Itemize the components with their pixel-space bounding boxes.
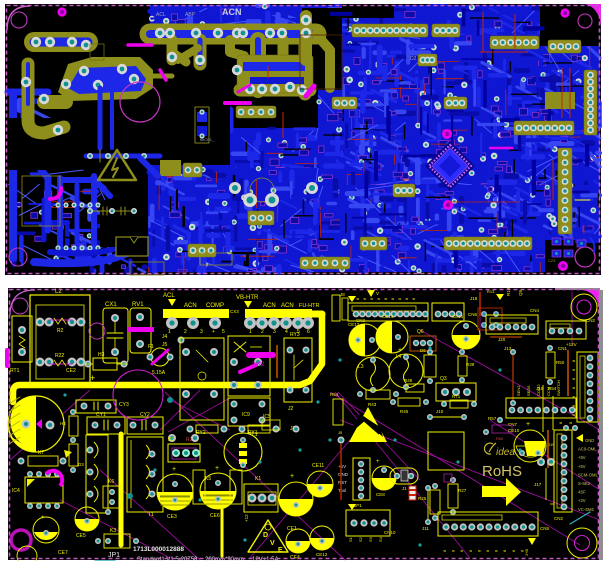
- svg-text:K5: K5: [205, 476, 211, 482]
- svg-text:CN10: CN10: [384, 530, 396, 535]
- svg-text:CE15: CE15: [452, 314, 464, 319]
- svg-text:S2: S2: [358, 536, 363, 542]
- svg-text:+2V: +2V: [578, 498, 586, 503]
- svg-text:CE3: CE3: [167, 514, 177, 520]
- svg-text:R71: R71: [452, 394, 461, 399]
- svg-text:CY1: CY1: [96, 412, 106, 418]
- svg-text:V: V: [270, 540, 275, 547]
- svg-text:SEN2: SEN2: [516, 385, 521, 396]
- svg-text:J4: J4: [162, 334, 168, 340]
- svg-text:CE14: CE14: [382, 314, 394, 319]
- svg-text:AC0-OML: AC0-OML: [578, 447, 597, 452]
- svg-text:S4: S4: [378, 536, 383, 542]
- svg-text:+: +: [90, 373, 95, 383]
- svg-text:J1: J1: [402, 486, 407, 491]
- svg-text:K1: K1: [255, 476, 261, 482]
- svg-text:+12V: +12V: [566, 342, 577, 347]
- svg-text:R57: R57: [488, 416, 497, 421]
- svg-text:CE12: CE12: [316, 552, 328, 557]
- svg-text:R19: R19: [506, 287, 511, 296]
- svg-text:+: +: [526, 421, 530, 428]
- svg-text:+5V: +5V: [338, 464, 346, 469]
- svg-text:CE11: CE11: [312, 463, 324, 469]
- svg-text:R22: R22: [55, 353, 64, 359]
- svg-text:RY3: RY3: [290, 332, 300, 338]
- svg-text:J5: J5: [162, 342, 168, 348]
- svg-text:R39: R39: [466, 362, 475, 367]
- svg-text:Tool: Tool: [338, 488, 346, 493]
- svg-text:R27: R27: [458, 488, 467, 493]
- svg-text:J18: J18: [470, 296, 478, 301]
- svg-text:ACL: ACL: [156, 12, 166, 18]
- svg-text:R54: R54: [330, 392, 339, 397]
- svg-text:R2: R2: [57, 328, 64, 334]
- svg-text:CN1: CN1: [558, 346, 567, 351]
- svg-text:L3: L3: [358, 364, 364, 370]
- svg-text:ABP: ABP: [185, 12, 196, 18]
- svg-text:J13: J13: [504, 346, 512, 351]
- svg-text:ACN: ACN: [281, 303, 294, 309]
- svg-text:ACN: ACN: [184, 303, 197, 309]
- svg-text:5: 5: [222, 329, 225, 335]
- svg-text:J10: J10: [436, 409, 444, 414]
- svg-text:GND: GND: [585, 438, 594, 443]
- svg-text:SED5: SED5: [526, 385, 531, 396]
- svg-text:R60: R60: [496, 436, 504, 441]
- svg-text:CX3: CX3: [230, 309, 239, 314]
- svg-text:1713L000012888: 1713L000012888: [133, 546, 184, 553]
- svg-text:D2: D2: [410, 56, 417, 62]
- svg-text:idea: idea: [496, 447, 515, 458]
- svg-text:CY3: CY3: [119, 402, 129, 408]
- svg-text:ACN: ACN: [222, 7, 242, 17]
- svg-text:5.15A: 5.15A: [152, 370, 166, 376]
- svg-text:CE2: CE2: [66, 368, 76, 374]
- svg-text:H3: H3: [98, 352, 105, 358]
- svg-text:+: +: [398, 347, 402, 354]
- svg-text:ACL: ACL: [163, 293, 175, 299]
- svg-text:+: +: [376, 459, 380, 465]
- svg-text:CN2: CN2: [554, 516, 563, 521]
- svg-text:C23: C23: [548, 258, 556, 263]
- svg-text:F1: F1: [148, 344, 154, 350]
- svg-text:SWITCH: SWITCH: [556, 380, 561, 396]
- svg-text:CE7: CE7: [58, 550, 68, 556]
- svg-text:IC4: IC4: [12, 488, 20, 494]
- svg-text:4: 4: [285, 329, 288, 335]
- svg-text:4SF: 4SF: [578, 490, 586, 495]
- svg-text:D6: D6: [420, 348, 426, 353]
- svg-text:K7: K7: [38, 450, 44, 456]
- svg-text:CX1: CX1: [105, 302, 117, 308]
- svg-text:Q3: Q3: [440, 376, 447, 382]
- svg-text:RST: RST: [338, 480, 347, 485]
- svg-text:T1: T1: [148, 512, 154, 518]
- svg-text:J8: J8: [340, 292, 345, 297]
- svg-text:D1: D1: [168, 437, 175, 443]
- svg-text:FU-HTR: FU-HTR: [299, 303, 319, 309]
- svg-text:CE6: CE6: [210, 513, 220, 519]
- svg-text:3: 3: [273, 329, 276, 335]
- svg-text:CE8: CE8: [376, 492, 385, 497]
- svg-text:S3: S3: [368, 536, 373, 542]
- svg-text:CCM: CCM: [546, 387, 551, 396]
- svg-text:L1: L1: [252, 432, 258, 438]
- svg-text:RV1: RV1: [132, 302, 144, 308]
- svg-text:+: +: [215, 465, 219, 472]
- svg-text:+5V: +5V: [578, 455, 586, 460]
- svg-text:CN3: CN3: [356, 318, 365, 323]
- svg-text:CN5: CN5: [540, 526, 549, 531]
- svg-text:RT1: RT1: [10, 368, 20, 374]
- svg-text:+5V: +5V: [578, 464, 586, 469]
- svg-text:CY2: CY2: [140, 412, 150, 418]
- svg-text:Q6: Q6: [417, 329, 424, 335]
- svg-text:+: +: [172, 466, 176, 473]
- svg-text:E: E: [278, 547, 283, 554]
- svg-text:CN7: CN7: [508, 422, 517, 427]
- svg-text:1: 1: [249, 329, 252, 335]
- svg-text:3: 3: [200, 329, 203, 335]
- svg-text:D3: D3: [78, 462, 84, 467]
- svg-text:H4: H4: [60, 421, 66, 426]
- svg-text:R45: R45: [400, 409, 409, 414]
- svg-text:6: 6: [307, 329, 310, 335]
- svg-text:VC-SM2: VC-SM2: [578, 507, 594, 512]
- svg-text:VB-HTR: VB-HTR: [236, 295, 259, 301]
- svg-text:K6: K6: [108, 479, 114, 485]
- svg-text:D: D: [263, 532, 268, 539]
- svg-text:J2: J2: [288, 406, 294, 412]
- svg-text:GND: GND: [338, 472, 349, 477]
- svg-text:L4: L4: [396, 354, 402, 360]
- svg-text:S1: S1: [348, 536, 353, 542]
- svg-text:CN6: CN6: [468, 312, 477, 317]
- svg-text:Q9: Q9: [518, 289, 523, 296]
- svg-text:COM2: COM2: [536, 384, 541, 396]
- svg-text:1: 1: [168, 329, 171, 335]
- svg-text:2: 2: [261, 329, 264, 335]
- svg-text:2: 2: [184, 329, 187, 335]
- svg-text:CN4: CN4: [530, 308, 539, 313]
- svg-text:CE5: CE5: [76, 533, 86, 539]
- svg-text:RoHS: RoHS: [482, 463, 522, 480]
- svg-text:CE10: CE10: [508, 428, 520, 433]
- svg-text:IC9: IC9: [242, 412, 250, 418]
- svg-text:2W2: 2W2: [252, 362, 265, 368]
- svg-text:knCE1_: knCE1_: [200, 137, 215, 142]
- svg-text:S-SE2: S-SE2: [578, 481, 591, 486]
- svg-text:+: +: [212, 329, 215, 335]
- svg-text:K3: K3: [110, 528, 116, 534]
- svg-text:R50: R50: [556, 360, 565, 365]
- svg-text:SCM-OML: SCM-OML: [578, 472, 598, 477]
- svg-text:+12: +12: [244, 514, 249, 522]
- svg-text:R48: R48: [404, 378, 413, 383]
- svg-text:J17: J17: [534, 482, 542, 487]
- svg-text:COMP: COMP: [206, 303, 224, 309]
- svg-text:CN2: CN2: [586, 318, 595, 323]
- svg-text:IC5: IC5: [263, 414, 271, 420]
- svg-text:+: +: [290, 473, 294, 480]
- svg-text:V: V: [376, 291, 379, 296]
- svg-text:J+B: J+B: [524, 549, 529, 556]
- svg-text:R43: R43: [368, 402, 377, 407]
- svg-text:+: +: [41, 515, 45, 521]
- svg-text:ACN: ACN: [263, 303, 276, 309]
- svg-text:J11: J11: [422, 526, 429, 531]
- svg-text:R25: R25: [418, 496, 427, 501]
